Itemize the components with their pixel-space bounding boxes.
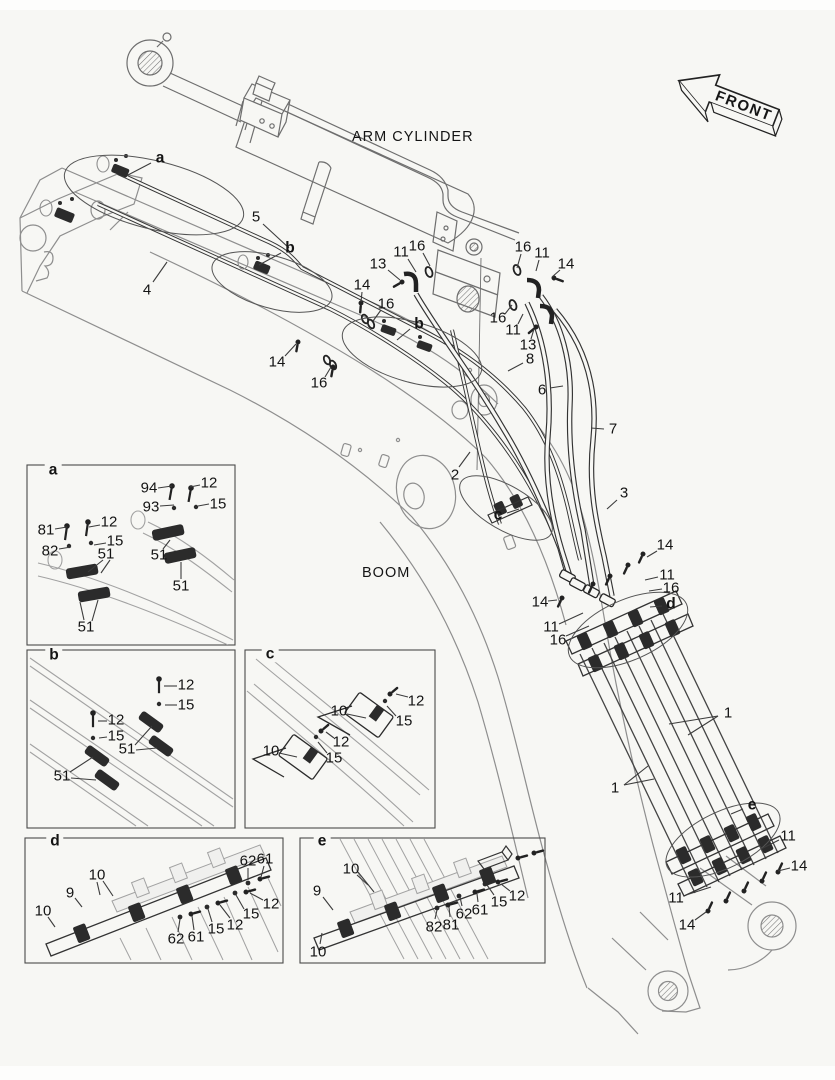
detail-d-art <box>46 845 281 960</box>
arm-cylinder-drawing <box>127 33 519 470</box>
detail-b-art <box>30 658 233 826</box>
parts-diagram-page: FRONT ARM CYLINDER BOOM <box>0 0 835 1080</box>
fitting-hardware <box>294 264 565 378</box>
page-margin-bottom <box>0 1066 835 1080</box>
detail-box-frames <box>25 465 545 963</box>
detail-e-art <box>314 839 545 959</box>
detail-a-art <box>38 483 234 645</box>
detail-c-art <box>247 652 429 826</box>
detail-box-c <box>245 650 435 828</box>
boom-label: BOOM <box>362 565 410 581</box>
clamp-bank-e <box>666 813 786 915</box>
clamp-bank-d <box>555 551 693 676</box>
diagram-artwork: FRONT ARM CYLINDER BOOM <box>0 0 835 1080</box>
front-arrow: FRONT <box>669 62 789 146</box>
hydraulic-hoses <box>416 294 616 607</box>
detail-ellipses <box>57 140 791 893</box>
detail-box-b <box>27 650 235 828</box>
page-margin-top <box>0 0 835 10</box>
detail-box-a <box>27 465 235 645</box>
arm-cylinder-label: ARM CYLINDER <box>352 129 474 145</box>
